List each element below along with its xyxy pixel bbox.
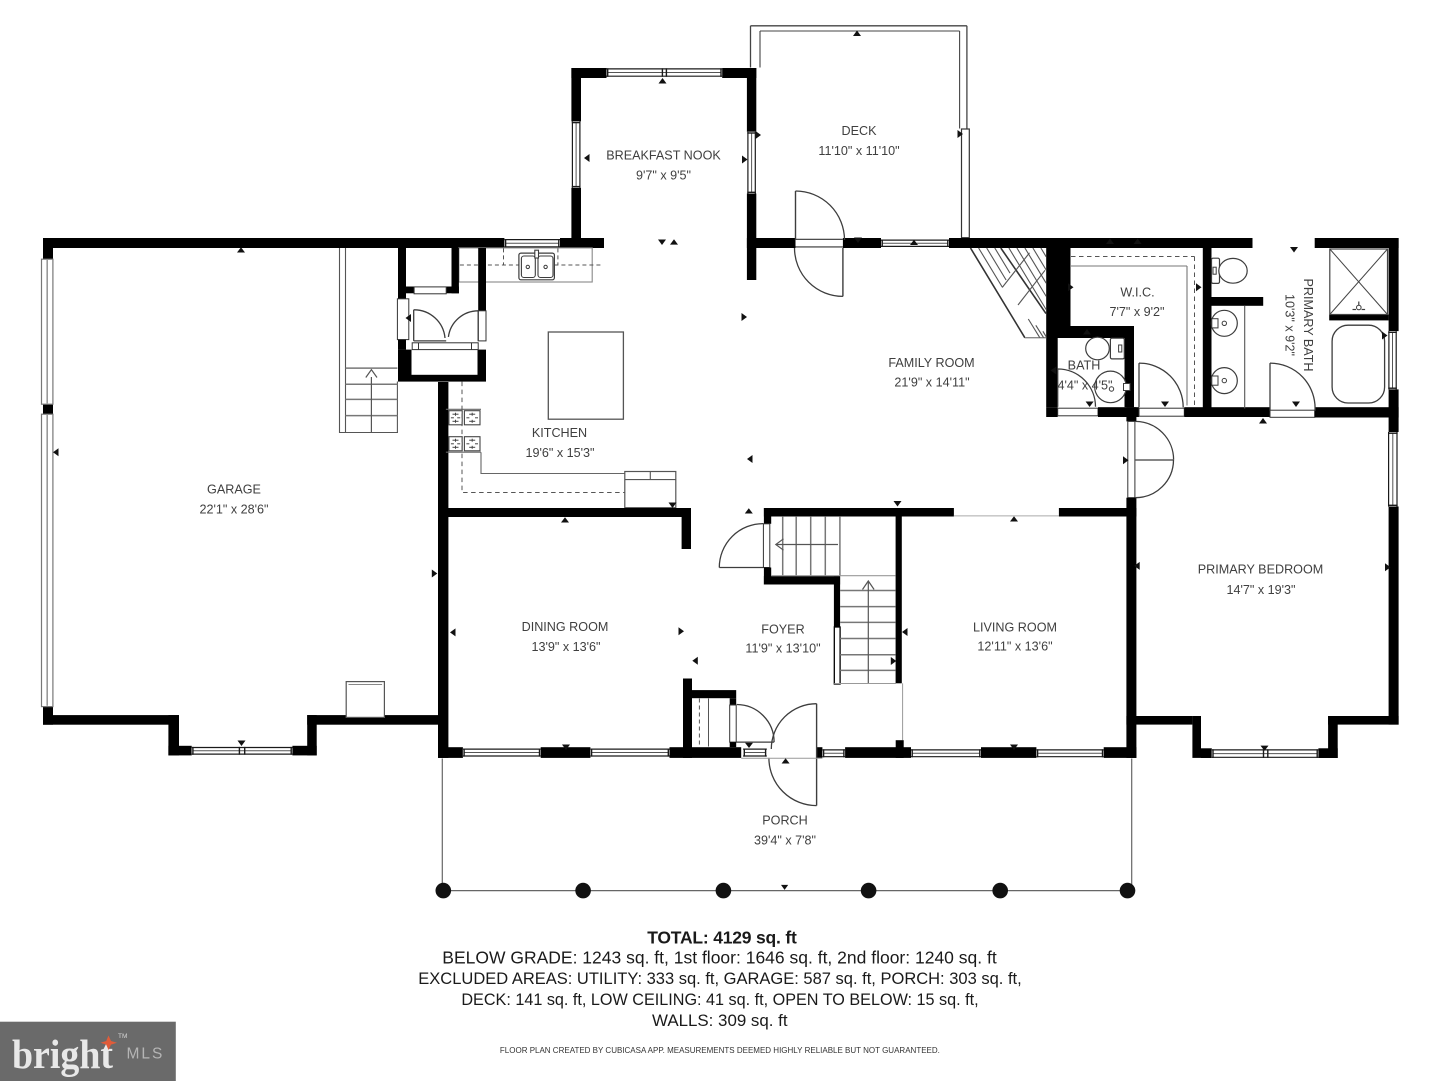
svg-text:bright: bright xyxy=(12,1031,113,1077)
svg-text:DECK: DECK xyxy=(842,124,878,138)
svg-text:21'9" x 14'11": 21'9" x 14'11" xyxy=(894,376,969,390)
svg-text:FLOOR PLAN CREATED BY CUBICASA: FLOOR PLAN CREATED BY CUBICASA APP. MEAS… xyxy=(500,1046,940,1055)
svg-text:9'7" x 9'5": 9'7" x 9'5" xyxy=(636,169,691,183)
svg-text:14'7" x 19'3": 14'7" x 19'3" xyxy=(1226,583,1295,597)
svg-text:WALLS: 309 sq. ft: WALLS: 309 sq. ft xyxy=(652,1011,788,1030)
svg-text:4'4" x 4'5": 4'4" x 4'5" xyxy=(1057,379,1112,393)
svg-text:W.I.C.: W.I.C. xyxy=(1120,286,1154,300)
svg-text:FAMILY ROOM: FAMILY ROOM xyxy=(888,356,974,370)
svg-text:22'1" x 28'6": 22'1" x 28'6" xyxy=(199,503,268,517)
svg-text:39'4" x 7'8": 39'4" x 7'8" xyxy=(754,834,816,848)
svg-text:TOTAL: 4129 sq. ft: TOTAL: 4129 sq. ft xyxy=(647,927,797,947)
svg-text:12'11" x 13'6": 12'11" x 13'6" xyxy=(977,640,1052,654)
svg-text:TM: TM xyxy=(118,1033,127,1040)
svg-text:BELOW GRADE: 1243 sq. ft, 1st: BELOW GRADE: 1243 sq. ft, 1st floor: 164… xyxy=(442,947,997,967)
svg-text:FOYER: FOYER xyxy=(761,623,804,637)
svg-text:PRIMARY BEDROOM: PRIMARY BEDROOM xyxy=(1198,563,1324,577)
svg-text:BREAKFAST NOOK: BREAKFAST NOOK xyxy=(606,149,721,163)
svg-text:PORCH: PORCH xyxy=(762,814,807,828)
svg-text:MLS: MLS xyxy=(127,1046,165,1063)
svg-text:GARAGE: GARAGE xyxy=(207,483,261,497)
svg-text:7'7" x 9'2": 7'7" x 9'2" xyxy=(1109,305,1164,319)
svg-text:KITCHEN: KITCHEN xyxy=(532,426,587,440)
svg-text:11'10" x 11'10": 11'10" x 11'10" xyxy=(818,144,899,158)
svg-text:PRIMARY BATH: PRIMARY BATH xyxy=(1301,278,1315,371)
svg-text:11'9" x 13'10": 11'9" x 13'10" xyxy=(745,642,820,656)
svg-text:DECK: 141 sq. ft, LOW CEILING:: DECK: 141 sq. ft, LOW CEILING: 41 sq. ft… xyxy=(461,991,978,1009)
svg-text:10'3" x 9'2": 10'3" x 9'2" xyxy=(1283,294,1297,356)
svg-text:LIVING ROOM: LIVING ROOM xyxy=(973,621,1057,635)
svg-text:19'6" x 15'3": 19'6" x 15'3" xyxy=(525,446,594,460)
svg-text:BATH: BATH xyxy=(1068,359,1101,373)
svg-text:EXCLUDED AREAS: UTILITY: 333 s: EXCLUDED AREAS: UTILITY: 333 sq. ft, GAR… xyxy=(418,970,1021,988)
svg-text:DINING ROOM: DINING ROOM xyxy=(522,620,609,634)
svg-text:13'9" x 13'6": 13'9" x 13'6" xyxy=(531,640,600,654)
